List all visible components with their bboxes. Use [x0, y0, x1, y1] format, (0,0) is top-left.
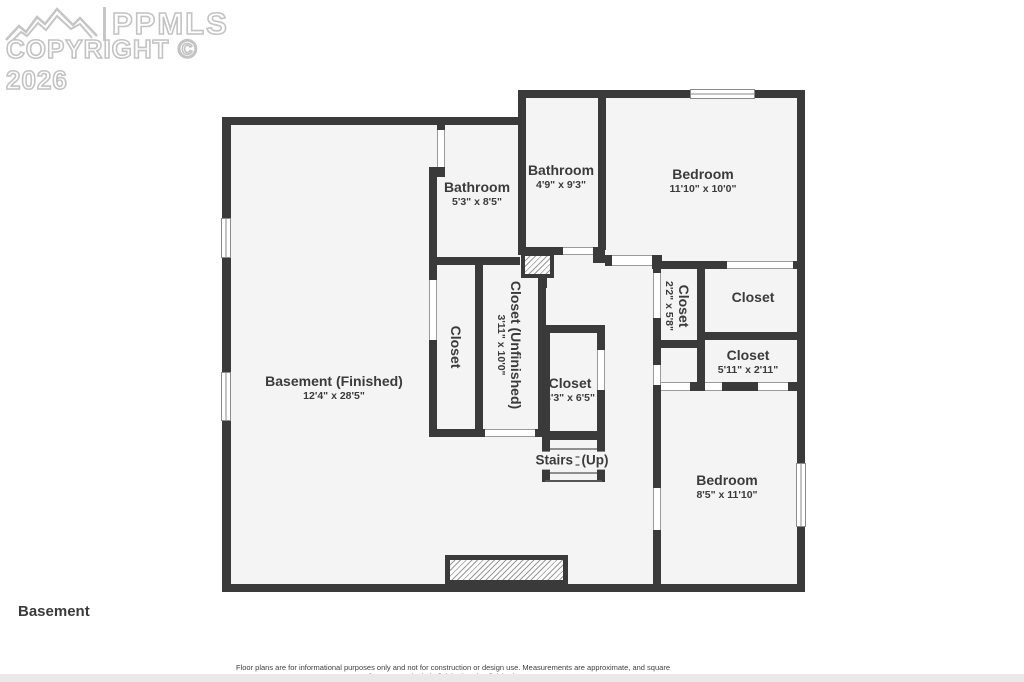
room-label-bathroom-2: Bathroom 4'9" x 9'3"	[528, 161, 594, 193]
wall	[542, 431, 605, 440]
wall	[429, 167, 445, 177]
door-opening	[653, 488, 661, 530]
door-opening	[437, 130, 445, 167]
door-opening	[653, 365, 661, 385]
door-opening	[563, 247, 593, 255]
room-dims: (Up)	[579, 452, 610, 470]
room-name: Closet (Unfinished)	[507, 281, 525, 409]
wall	[538, 274, 547, 288]
door-opening	[705, 382, 722, 391]
watermark: PPMLS COPYRIGHT © 2026	[0, 0, 260, 70]
wall	[222, 584, 805, 592]
room-label-bathroom-1: Bathroom 5'3" x 8'5"	[444, 178, 510, 210]
room-name: Bedroom	[696, 471, 757, 489]
room-label-closet-2-2: Closet 2'2" x 5'8"	[661, 281, 693, 331]
wall	[722, 382, 758, 391]
wall	[690, 382, 705, 391]
wall	[793, 261, 797, 269]
room-name: Stairs	[534, 452, 576, 470]
floor-title: Basement	[18, 603, 90, 620]
window	[690, 89, 755, 99]
door-opening	[653, 273, 661, 318]
floor-plan-page: PPMLS COPYRIGHT © 2026	[0, 0, 1024, 682]
wall	[788, 382, 797, 391]
window	[221, 218, 231, 258]
bottom-strip	[0, 674, 1024, 682]
wall	[518, 90, 526, 253]
wall	[429, 429, 485, 437]
room-dims: 4'9" x 9'3"	[528, 179, 594, 193]
room-dims: 12'4" x 28'5"	[265, 390, 403, 404]
wall	[222, 117, 526, 125]
copyright-text: COPYRIGHT © 2026	[6, 34, 260, 96]
room-name: Closet	[732, 288, 775, 306]
room-name: Bathroom	[528, 161, 594, 179]
room-name: Basement (Finished)	[265, 372, 403, 390]
room-dims: 3'11" x 10'0"	[493, 281, 507, 409]
room-label-bedroom-top: Bedroom 11'10" x 10'0"	[670, 165, 737, 197]
wall	[222, 117, 231, 592]
wall	[653, 530, 661, 592]
room-label-closet-left: Closet	[447, 326, 465, 369]
wall	[429, 177, 437, 265]
room-dims: 8'5" x 11'10"	[696, 489, 757, 503]
wall	[662, 261, 727, 269]
room-name: Closet	[447, 326, 465, 369]
room-name: Bathroom	[444, 178, 510, 196]
stair-edge	[545, 480, 602, 482]
wall	[653, 255, 661, 273]
wall	[605, 255, 612, 266]
room-name: Bedroom	[670, 165, 737, 183]
wall	[653, 385, 661, 488]
door-opening	[758, 382, 788, 391]
room-dims: 3'3" x 6'5"	[545, 392, 595, 406]
door-opening	[612, 255, 652, 266]
room-dims: 5'11" x 2'11"	[718, 364, 779, 378]
room-dims: 5'3" x 8'5"	[444, 196, 510, 210]
room-label-bedroom-bottom: Bedroom 8'5" x 11'10"	[696, 471, 757, 503]
wall	[518, 90, 805, 98]
wall	[697, 262, 705, 390]
wall	[653, 340, 705, 348]
room-label-closet-topright: Closet	[732, 288, 775, 306]
stair-tread	[550, 472, 597, 474]
room-dims: 2'2" x 5'8"	[661, 281, 675, 331]
wall	[598, 90, 606, 250]
window	[796, 463, 806, 527]
wall	[542, 325, 605, 333]
room-dims: 11'10" x 10'0"	[670, 183, 737, 197]
window	[221, 372, 231, 421]
door-opening	[727, 261, 793, 269]
wall	[437, 117, 445, 130]
room-label-basement: Basement (Finished) 12'4" x 28'5"	[265, 372, 403, 404]
door-opening	[429, 280, 437, 340]
room-name: Closet	[718, 346, 779, 364]
wall	[593, 247, 605, 263]
door-opening	[485, 429, 535, 437]
wall	[475, 263, 483, 437]
door-opening	[661, 382, 690, 391]
room-name: Closet	[545, 374, 595, 392]
fireplace-hatch	[445, 555, 568, 585]
room-label-closet-5-11: Closet 5'11" x 2'11"	[718, 346, 779, 378]
wall	[697, 332, 797, 340]
door-opening	[597, 350, 605, 390]
room-label-closet-unfinished: Closet (Unfinished) 3'11" x 10'0"	[493, 281, 525, 409]
room-name: Closet	[675, 281, 693, 331]
room-label-stairs: Stairs (Up)	[534, 451, 611, 472]
room-label-closet-3-3: Closet 3'3" x 6'5"	[545, 374, 595, 406]
